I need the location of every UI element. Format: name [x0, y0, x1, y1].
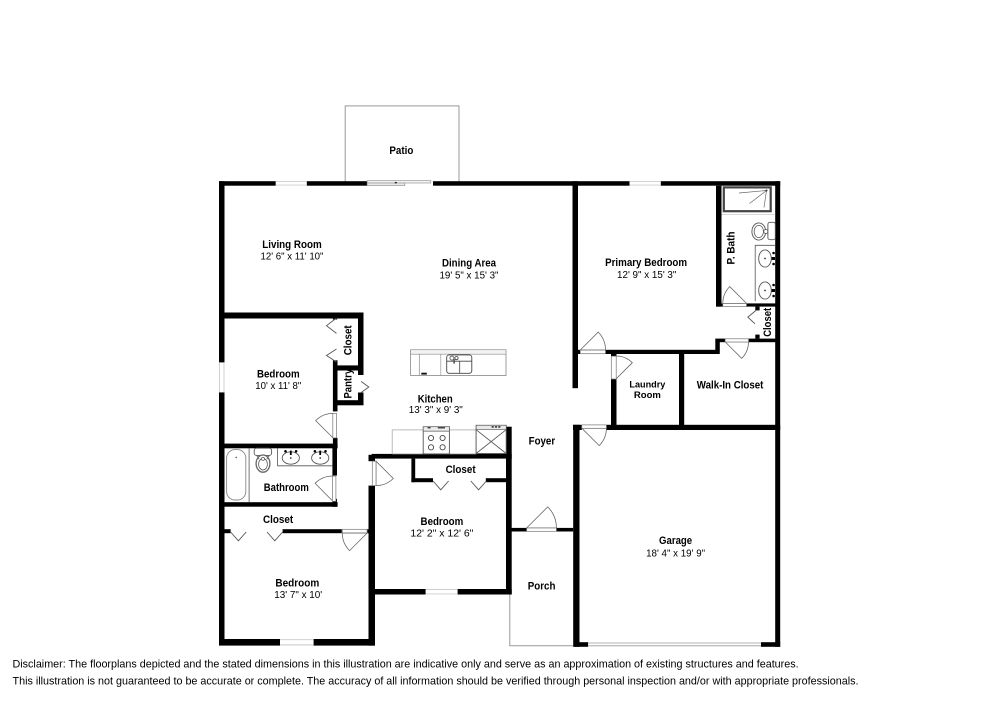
- svg-text:Bedroom: Bedroom: [421, 516, 464, 528]
- svg-text:12' 6" x 11' 10": 12' 6" x 11' 10": [261, 252, 324, 263]
- svg-text:Primary Bedroom: Primary Bedroom: [605, 257, 687, 269]
- svg-text:13' 7" x 10': 13' 7" x 10': [274, 590, 322, 601]
- svg-text:19' 5" x 15' 3": 19' 5" x 15' 3": [440, 271, 499, 282]
- svg-text:This illustration is not guara: This illustration is not guaranteed to b…: [13, 675, 859, 687]
- svg-text:Bedroom: Bedroom: [257, 369, 300, 381]
- svg-text:Closet: Closet: [342, 325, 354, 355]
- svg-text:Laundry: Laundry: [629, 379, 665, 389]
- svg-text:Garage: Garage: [659, 535, 692, 547]
- svg-text:12' 9" x 15' 3": 12' 9" x 15' 3": [617, 270, 677, 281]
- svg-text:10' x 11' 8": 10' x 11' 8": [255, 381, 301, 392]
- svg-text:P. Bath: P. Bath: [726, 231, 738, 264]
- svg-text:Dining Area: Dining Area: [442, 257, 497, 269]
- svg-text:Closet: Closet: [446, 464, 476, 476]
- svg-text:Pantry: Pantry: [342, 368, 354, 398]
- svg-text:Disclaimer: The floorplans dep: Disclaimer: The floorplans depicted and …: [13, 658, 799, 670]
- svg-text:Walk-In Closet: Walk-In Closet: [697, 380, 764, 392]
- svg-text:Closet: Closet: [263, 514, 294, 526]
- svg-text:Closet: Closet: [762, 308, 774, 337]
- svg-text:Bedroom: Bedroom: [275, 578, 319, 590]
- svg-text:Bathroom: Bathroom: [264, 482, 309, 494]
- svg-text:12' 2" x 12' 6": 12' 2" x 12' 6": [410, 528, 473, 539]
- svg-text:Patio: Patio: [389, 145, 413, 157]
- svg-text:Room: Room: [634, 390, 661, 400]
- svg-text:Porch: Porch: [528, 581, 556, 593]
- svg-text:18' 4" x 19' 9": 18' 4" x 19' 9": [646, 549, 705, 560]
- svg-text:Foyer: Foyer: [529, 436, 556, 448]
- svg-text:13' 3" x 9' 3": 13' 3" x 9' 3": [409, 405, 463, 416]
- svg-text:Living Room: Living Room: [262, 239, 322, 251]
- svg-text:Kitchen: Kitchen: [418, 393, 453, 405]
